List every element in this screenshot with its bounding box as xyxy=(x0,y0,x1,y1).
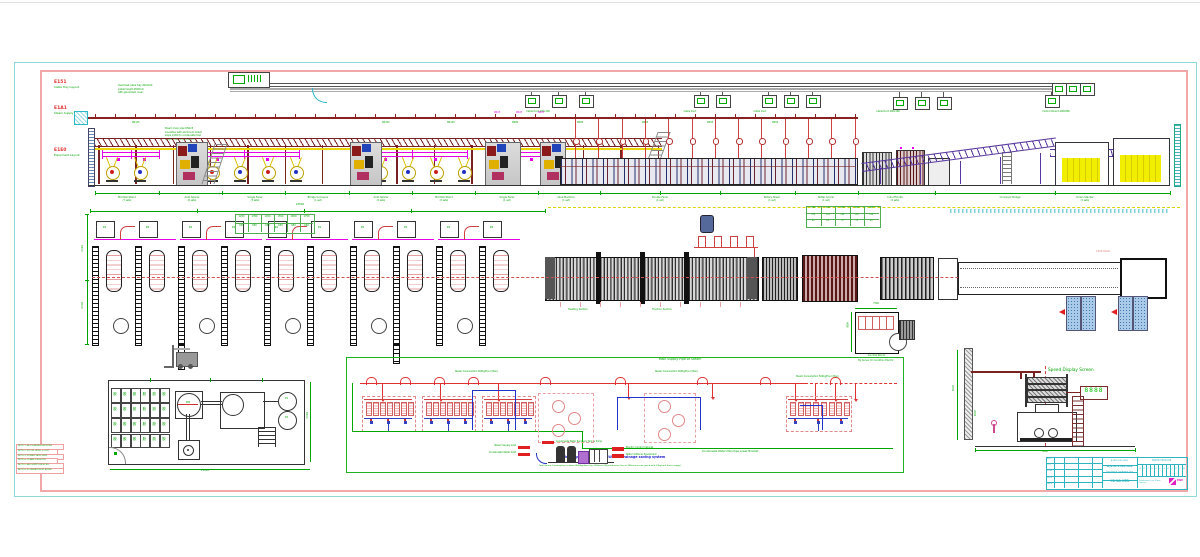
heater-manifold xyxy=(788,399,848,400)
plan-paper-roll xyxy=(149,250,165,292)
cluster-part xyxy=(489,160,499,169)
dim-tick xyxy=(85,344,89,345)
speed-display-value: 8888 xyxy=(1081,388,1107,395)
dim-line-plan xyxy=(90,211,545,212)
condensate-rise xyxy=(352,383,353,431)
plan-stand-box-label: RS xyxy=(483,226,500,229)
dim-tick xyxy=(262,378,263,382)
glue-cell-glyph: 胶 xyxy=(150,407,158,412)
tb-vline xyxy=(1137,457,1138,488)
plan-shear-block xyxy=(762,257,798,301)
plan-pipe-bend xyxy=(206,226,221,240)
tb-cell-line xyxy=(1150,464,1151,476)
pipe-size-label: DN80 xyxy=(512,121,518,124)
data-table-2-cell: 75 xyxy=(850,220,865,222)
tb-cell-line xyxy=(1174,464,1175,476)
finned-tube xyxy=(461,402,467,416)
tb-cell-line xyxy=(1162,464,1163,476)
riser-size-label: DN25 xyxy=(538,111,544,114)
steam-pipe-tick xyxy=(735,114,736,118)
note-line: insulation with aluminum jacket xyxy=(165,131,202,134)
side-label-text-1: Cable Tray Layout xyxy=(54,86,79,89)
expansion-loop xyxy=(540,377,551,385)
data-table-2-cell: 120 xyxy=(806,214,821,216)
plan-paper-roll xyxy=(278,250,294,292)
steam-pipe-tick xyxy=(595,114,596,118)
pallet-label: 1400 Pallet xyxy=(1096,251,1110,254)
glue-cell-glyph: 胶 xyxy=(121,422,129,427)
steam-trap xyxy=(573,138,580,145)
glue-pump-label: P2 xyxy=(278,416,295,419)
plan-paper-roll xyxy=(321,250,337,292)
cluster-part xyxy=(552,144,561,152)
plan-pipe-bend xyxy=(378,226,393,240)
glue-cell-glyph: 胶 xyxy=(140,392,148,397)
dim-tick xyxy=(475,191,476,195)
glue-cell-glyph: 胶 xyxy=(131,392,139,397)
steam-pipe-tick xyxy=(455,114,456,118)
cluster-part xyxy=(492,172,504,180)
plan-paper-roll xyxy=(364,250,380,292)
data-table-2-cell: 80 xyxy=(864,220,879,222)
junction-box-lamp xyxy=(1055,86,1063,92)
glue-cell-glyph: 胶 xyxy=(140,407,148,412)
finned-tube xyxy=(454,402,460,416)
cluster-part xyxy=(178,146,187,156)
pump-indicator xyxy=(404,419,406,421)
tb-cell-line xyxy=(1146,464,1147,476)
plan-connector xyxy=(94,239,176,240)
dim-tick xyxy=(304,209,305,213)
steam-pipe-tick xyxy=(815,114,816,118)
dryer-dim-tick xyxy=(740,302,741,307)
glue-cell-glyph: 胶 xyxy=(160,407,168,412)
speed-dim-v: 4500 xyxy=(950,385,953,391)
cluster-part xyxy=(497,144,506,152)
plan-rail xyxy=(221,246,228,346)
junction-box-lamp xyxy=(809,98,817,104)
glue-cell-glyph: 胶 xyxy=(121,407,129,412)
preheater-roll xyxy=(658,400,671,413)
tb-cell-line xyxy=(1158,464,1159,476)
section-ladder xyxy=(1072,396,1084,446)
control-room-dim-left: 4800 xyxy=(845,322,848,328)
cable-label: Control Panel 1200x800 xyxy=(1026,110,1086,113)
glue-cell-glyph: 胶 xyxy=(131,437,139,442)
plan-rail xyxy=(307,246,314,346)
cabinet-screen xyxy=(233,75,245,84)
pipe-size-label: DN80 xyxy=(577,121,583,124)
splicer-arm xyxy=(102,150,103,159)
preheater-roll xyxy=(552,424,565,437)
dim-tick xyxy=(85,280,89,281)
steam-pipe-tick xyxy=(755,114,756,118)
side-label-text-3: Equipment Layout xyxy=(54,154,80,157)
machine-label-sub: (1 set) xyxy=(536,199,596,202)
tag-block xyxy=(612,447,624,451)
note-line: Overhead cable tray 200x100 xyxy=(118,84,152,87)
forklift-wheel xyxy=(188,364,193,369)
tb-left-row: DATE xyxy=(1047,483,1055,485)
pump-dot xyxy=(187,449,189,451)
pallet xyxy=(1081,296,1096,331)
plan-pipe-bend xyxy=(464,226,479,240)
plan-rail xyxy=(178,246,185,346)
glue-cell-glyph: 胶 xyxy=(140,422,148,427)
data-table-2-cell: 160 xyxy=(864,214,879,216)
preheater-roll xyxy=(672,414,685,427)
glue-pipe-v xyxy=(189,414,190,440)
window-top-line xyxy=(0,2,1200,3)
junction-box-lamp xyxy=(555,98,563,104)
steam-pipe-tick xyxy=(615,114,616,118)
base-roller xyxy=(1034,428,1044,438)
steam-trap xyxy=(643,138,650,145)
glue-cell-glyph: 胶 xyxy=(131,422,139,427)
conveyor-dots xyxy=(960,268,1118,269)
expansion-loop xyxy=(760,377,771,385)
glue-pipe-v xyxy=(186,414,187,440)
pump-indicator xyxy=(464,419,466,421)
data-table-2-cell: 65 xyxy=(821,220,836,222)
tag-block xyxy=(612,454,624,458)
side-label-text-2: Steam Supply xyxy=(54,112,73,115)
steam-pipe-tick xyxy=(855,114,856,118)
condensate-pump xyxy=(464,421,467,424)
steam-pipe-tick xyxy=(315,114,316,118)
data-table-1-cell: 1250 xyxy=(235,215,248,218)
tag-block xyxy=(518,453,530,457)
wall-section-left xyxy=(88,128,95,187)
roll-stand-base xyxy=(106,180,118,182)
plan-stand-box-label: RS xyxy=(139,226,156,229)
plan-paper-roll xyxy=(235,250,251,292)
plan-paper-roll xyxy=(493,250,509,292)
glue-cell-glyph: 胶 xyxy=(160,422,168,427)
expansion-loop xyxy=(400,377,411,385)
stack-side-plate xyxy=(1025,374,1027,407)
plan-stand-box xyxy=(182,221,201,238)
junction-box-lamp xyxy=(697,98,705,104)
mid-dim-left-1: 5500 xyxy=(79,245,82,252)
finned-tube xyxy=(408,402,414,416)
dim-tick xyxy=(975,448,976,452)
riser-size-label: DN25 xyxy=(494,111,500,114)
dim-vline-speed xyxy=(957,350,958,440)
dim-tick xyxy=(1170,191,1171,195)
pump-indicator xyxy=(794,419,796,421)
condensate-drop xyxy=(508,421,509,431)
dim-tick xyxy=(600,191,601,195)
dryer-dim-tick xyxy=(700,302,701,307)
cad-drawing-viewport: E151 Cable Tray Layout E1A1 Steam Supply… xyxy=(0,0,1200,557)
forklift-fork xyxy=(164,366,174,368)
finned-tube xyxy=(836,402,842,416)
manifold-valve xyxy=(746,236,754,248)
roll-stand-base xyxy=(262,180,274,182)
paper-roll-core xyxy=(238,170,242,174)
cable-label: Cable Duct xyxy=(730,110,790,113)
glue-cell-glyph: 胶 xyxy=(111,437,119,442)
tb-left-row: SIGN xyxy=(1047,477,1055,479)
cluster-part xyxy=(352,146,361,156)
notes-text: NOTE 2: FLOOR LEVEL +-0.00 xyxy=(18,450,49,452)
overhead-pipe xyxy=(971,371,1041,373)
cable-label: Cable Duct 200x100 xyxy=(858,110,918,113)
bridge-post xyxy=(285,145,287,184)
dryer-endcap xyxy=(545,257,555,299)
cluster-part xyxy=(354,160,364,169)
tb-vline xyxy=(1092,457,1093,488)
steam-pipe-tick xyxy=(495,114,496,118)
plan-slitter-block xyxy=(802,255,858,302)
glue-cell-glyph: 胶 xyxy=(111,392,119,397)
data-table-2-cell: 340 xyxy=(850,207,865,209)
paper-roll-core xyxy=(294,170,298,174)
data-table-2-cell: 140 xyxy=(835,214,850,216)
data-table-1-cell: 650 xyxy=(287,224,300,227)
finned-tube xyxy=(528,402,534,416)
dim-tick xyxy=(935,191,936,195)
machine-label-sub: (7 sets) xyxy=(97,199,157,202)
finned-tube xyxy=(500,402,506,416)
manifold-valve xyxy=(714,236,722,248)
dryer-endcap xyxy=(747,257,757,299)
base-pad xyxy=(1020,438,1072,441)
steam-drop-arrow xyxy=(854,399,858,402)
roll-stand-base xyxy=(458,180,470,182)
junction-box-lamp xyxy=(940,100,948,106)
steam-drop xyxy=(855,383,856,399)
dim-tick xyxy=(197,209,198,213)
plan-wall-strip xyxy=(950,209,1170,213)
tb-cell-line xyxy=(1166,464,1167,476)
glue-cell-glyph: 胶 xyxy=(111,407,119,412)
t5-dim-vline xyxy=(310,382,311,462)
t5-dim-hline xyxy=(110,469,310,470)
bridge-post xyxy=(173,145,175,184)
data-table-1-cell: 650 xyxy=(274,224,287,227)
steam-pipe-tick xyxy=(375,114,376,118)
condensate-pump xyxy=(524,421,527,424)
steam-pipe-tick xyxy=(355,114,356,118)
plan-stand-box-label: RS xyxy=(96,226,113,229)
tb-hline xyxy=(1103,465,1137,466)
condensate-drop xyxy=(448,421,449,431)
plan-connector xyxy=(266,239,348,240)
condensate-pump xyxy=(404,421,407,424)
condensate-pump xyxy=(794,421,797,424)
tb-hline xyxy=(1103,472,1137,473)
roll-stack-bar xyxy=(1027,377,1067,384)
junction-box-lamp xyxy=(1083,86,1091,92)
glue-cell-glyph: 胶 xyxy=(121,437,129,442)
tb-left-row: QTY xyxy=(1047,464,1055,466)
dryer-dim-tick xyxy=(720,302,721,307)
dim-tick xyxy=(95,191,96,195)
plan-transfer-box xyxy=(938,258,958,300)
dryer-dim-tick xyxy=(600,302,601,307)
steam-pipe-tick xyxy=(775,114,776,118)
steam-pipe-tick xyxy=(275,114,276,118)
steam-pipe-tick xyxy=(195,114,196,118)
notes-text: NOTE 1: ALL DIMENSIONS IN MM xyxy=(18,445,52,447)
cluster-part xyxy=(487,146,496,156)
steam-pipe-tick xyxy=(675,114,676,118)
tb-cell-line xyxy=(1154,464,1155,476)
manifold-valve xyxy=(730,236,738,248)
data-table-1-cell: 1350 xyxy=(248,215,261,218)
junction-box-lamp xyxy=(1048,98,1056,104)
machine-label-sub: (2 sets) xyxy=(865,199,925,202)
dim-hline-speed xyxy=(975,450,1135,451)
steam-pipe-tick xyxy=(235,114,236,118)
dim-tick xyxy=(210,378,211,382)
data-table-1-cell: 1450 xyxy=(261,215,274,218)
cluster-part xyxy=(191,156,199,168)
heater-manifold xyxy=(484,399,532,400)
roll-stand-base xyxy=(430,180,442,182)
forklift-guard xyxy=(174,348,190,350)
manifold-valve xyxy=(698,236,706,248)
tag-block xyxy=(518,446,530,450)
preheater-roll xyxy=(658,428,671,441)
dim-tick xyxy=(855,308,897,309)
storage-tank xyxy=(222,394,244,416)
plan-circle xyxy=(285,318,301,334)
forklift-wheel xyxy=(178,364,183,369)
glue-pipe-h xyxy=(201,404,222,405)
junction-box-lamp xyxy=(582,98,590,104)
plan-rail xyxy=(479,246,486,346)
finned-tube xyxy=(521,402,527,416)
steam-pipe-tick xyxy=(175,114,176,118)
dim-tick xyxy=(545,209,546,213)
board-stack xyxy=(1120,155,1161,182)
finned-tube xyxy=(387,402,393,416)
plan-paper-roll xyxy=(192,250,208,292)
dim-tick xyxy=(285,191,286,195)
roll-stack-bar xyxy=(1027,390,1067,397)
section-ground xyxy=(975,446,1135,447)
pipe-hook xyxy=(1020,371,1022,379)
glue-tank-plan xyxy=(700,215,714,233)
plan-circle xyxy=(371,318,387,334)
steam-pipe-tick xyxy=(515,114,516,118)
dim-line-top-band xyxy=(95,193,1170,194)
steam-trap xyxy=(806,138,813,145)
condensate-drop xyxy=(818,421,819,431)
tb-hline xyxy=(1103,480,1137,481)
preheater-roll xyxy=(568,412,581,425)
plan-circle xyxy=(457,318,473,334)
cluster-part xyxy=(365,156,373,168)
expansion-loop xyxy=(615,377,626,385)
pump-indicator xyxy=(524,419,526,421)
tb-vline xyxy=(1064,457,1065,488)
junction-box-lamp xyxy=(765,98,773,104)
tb-cell-line xyxy=(1142,464,1143,476)
double-facer-body xyxy=(560,158,858,185)
steam-trap xyxy=(853,138,860,145)
control-room-hatch xyxy=(899,320,915,340)
note-line: Steam main pipe DN125 xyxy=(165,127,193,130)
glue-cell-glyph: 胶 xyxy=(150,422,158,427)
splicer-unit xyxy=(434,158,437,161)
junction-box-lamp xyxy=(528,98,536,104)
control-room-dim-top: 7500 xyxy=(856,303,896,306)
steam-pipe-tick xyxy=(95,114,96,118)
data-table-1-cell: 1550 xyxy=(274,215,287,218)
finned-tube xyxy=(447,402,453,416)
glue-cell-glyph: 胶 xyxy=(150,437,158,442)
plan-connector xyxy=(180,239,262,240)
data-table-2-cell: 70 xyxy=(835,220,850,222)
steam-source-box xyxy=(74,111,88,125)
dryer-divider xyxy=(684,252,689,304)
dryer-dim-tick xyxy=(640,302,641,307)
steam-pipe-tick xyxy=(475,114,476,118)
machine-label: Conveyor Bridge xyxy=(980,196,1040,199)
steam-pipe-tick xyxy=(535,114,536,118)
cluster-part xyxy=(183,172,195,180)
pallet xyxy=(1066,296,1081,331)
tb-left-row: REV xyxy=(1047,458,1055,460)
conveyor-leg xyxy=(1040,153,1041,184)
recovery-cabinet-line xyxy=(599,449,600,462)
finned-tube xyxy=(486,402,492,416)
bridge-post xyxy=(98,145,100,184)
tb-vline xyxy=(1078,457,1079,488)
junction-box-lamp xyxy=(1069,86,1077,92)
machine-label-sub: (1 set) xyxy=(477,199,537,202)
dim-tick xyxy=(150,378,151,382)
machine-label-sub: (2 sets) xyxy=(351,199,411,202)
note-line: slope 1/200 to condensate trap xyxy=(165,134,201,137)
junction-box-lamp xyxy=(918,100,926,106)
steam-trap xyxy=(783,138,790,145)
recovery-tank xyxy=(556,446,565,462)
condensate-pump xyxy=(430,421,433,424)
expansion-loop xyxy=(366,377,377,385)
pipe-size-label: DN100 xyxy=(447,121,455,124)
steam-pipe-tick xyxy=(835,114,836,118)
tb-hline xyxy=(1138,476,1186,477)
data-table-2-cell: 150 xyxy=(850,214,865,216)
cluster-part xyxy=(188,144,197,152)
t5-stairs xyxy=(258,427,276,447)
dim-tick xyxy=(851,312,852,352)
dim-tick xyxy=(85,214,89,215)
dryer-divider xyxy=(640,252,645,304)
dryer-dim-tick xyxy=(620,302,621,307)
blue-pipe-v xyxy=(617,397,618,430)
finned-tube xyxy=(507,402,513,416)
recovery-cabinet-line xyxy=(594,449,595,462)
glue-cell-glyph: 胶 xyxy=(111,422,119,427)
exit-end-box xyxy=(1120,258,1167,299)
cluster-part xyxy=(547,172,559,180)
control-desk xyxy=(886,316,894,330)
steam-main-dashed xyxy=(805,383,897,384)
base-roller xyxy=(1048,428,1058,438)
tb-cell-line xyxy=(1178,464,1179,476)
splicer-unit xyxy=(530,158,533,161)
blue-pipe-v xyxy=(515,390,516,430)
bridge-post xyxy=(471,145,473,184)
blue-pipe-v xyxy=(700,397,701,430)
steam-drop-arrow xyxy=(711,397,715,400)
